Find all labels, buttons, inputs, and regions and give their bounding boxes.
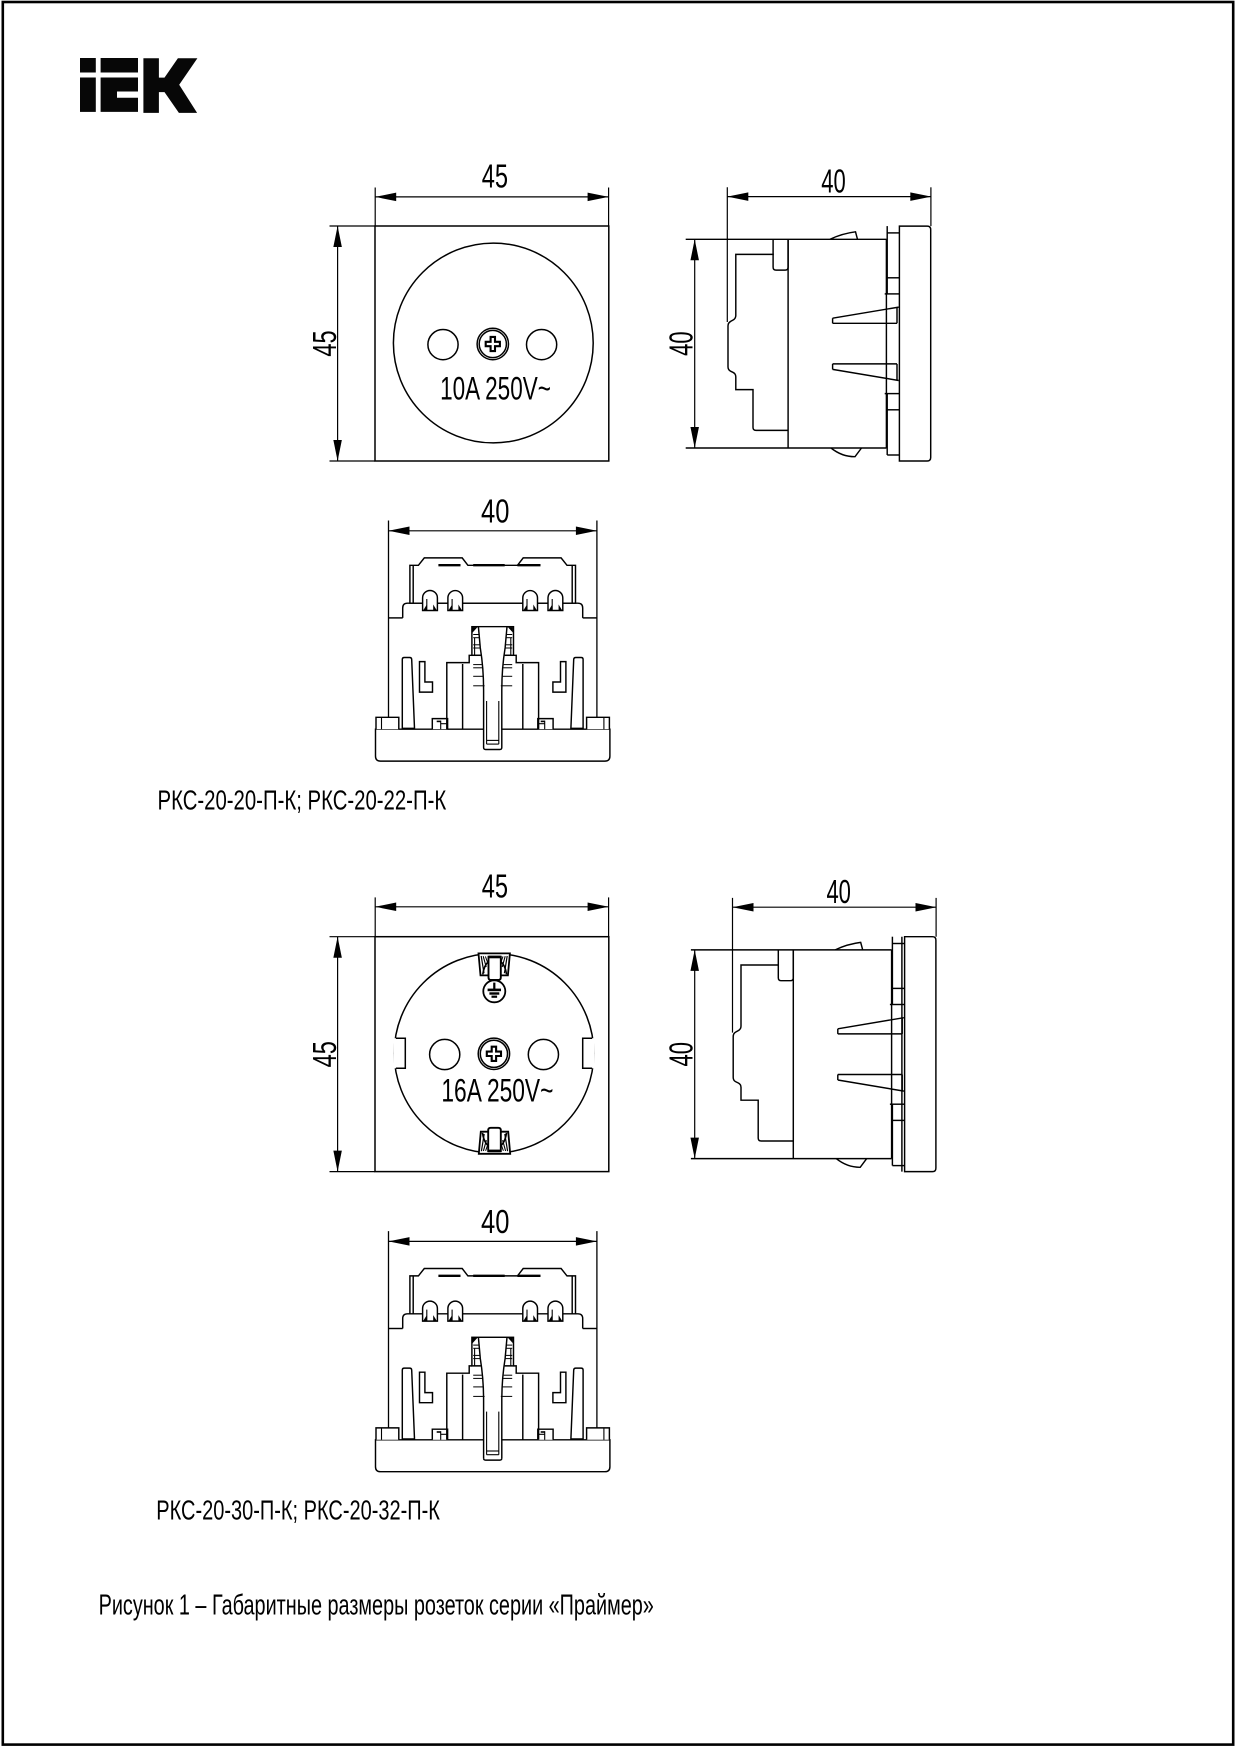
svg-text:40: 40 — [821, 163, 846, 200]
svg-text:16A 250V~: 16A 250V~ — [441, 1073, 553, 1109]
svg-text:40: 40 — [663, 1042, 700, 1067]
svg-text:РКС-20-20-П-К; РКС-20-22-П-К: РКС-20-20-П-К; РКС-20-22-П-К — [158, 784, 447, 815]
svg-text:10A 250V~: 10A 250V~ — [440, 370, 551, 406]
svg-text:Рисунок 1 – Габаритные размеры: Рисунок 1 – Габаритные размеры розеток с… — [99, 1589, 654, 1621]
svg-text:45: 45 — [482, 868, 508, 905]
svg-text:40: 40 — [826, 873, 851, 910]
svg-text:45: 45 — [482, 158, 508, 195]
svg-text:РКС-20-30-П-К; РКС-20-32-П-К: РКС-20-30-П-К; РКС-20-32-П-К — [156, 1494, 440, 1525]
svg-text:40: 40 — [663, 331, 700, 356]
